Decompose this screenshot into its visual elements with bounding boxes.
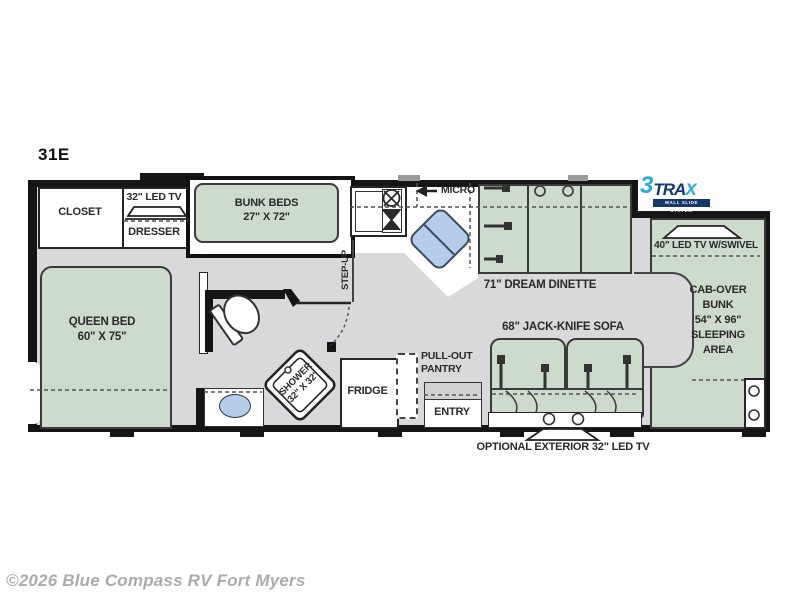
bathroom-wall — [205, 290, 213, 352]
jack-marker — [742, 432, 766, 437]
logo-tagline: WALL SLIDE SYSTEM — [653, 199, 710, 207]
slide-marker — [568, 175, 588, 181]
pantry-label: PANTRY — [421, 364, 481, 376]
3trax-logo: 3TRAX WALL SLIDE SYSTEM — [640, 174, 716, 206]
jack-marker — [610, 432, 634, 437]
door-hinge-stub — [327, 342, 336, 352]
cab-steps — [744, 378, 766, 429]
bunk-beds-size: 27" X 72" — [194, 211, 339, 223]
cab-top-wall — [629, 211, 770, 218]
sofa-cushion — [566, 338, 644, 394]
logo-x: X — [685, 181, 696, 198]
plan-title: 31E — [38, 146, 70, 165]
sink-wall-stub — [196, 388, 204, 425]
cabover-label: BUNK — [672, 299, 764, 311]
dinette-label: 71" DREAM DINETTE — [460, 279, 620, 292]
exterior-tv-label: OPTIONAL EXTERIOR 32" LED TV — [470, 441, 656, 453]
left-wall-notch — [28, 362, 40, 424]
fridge-label: FRIDGE — [341, 385, 394, 397]
sofa-label: 68" JACK-KNIFE SOFA — [480, 321, 646, 334]
jack-marker — [110, 432, 134, 437]
3trax-wordmark: 3TRAX — [640, 174, 716, 198]
logo-tra: TRA — [653, 181, 685, 198]
queen-bed — [40, 266, 172, 429]
sofa-cushion — [490, 338, 566, 394]
cabover-size: 54" X 96" — [672, 314, 764, 326]
bunk-beds-label: BUNK BEDS — [194, 197, 339, 209]
cabover-label: SLEEPING — [672, 329, 764, 341]
stepup-label: STEP-UP — [341, 245, 353, 295]
closet-label: CLOSET — [40, 206, 120, 218]
cabover-label: AREA — [672, 344, 764, 356]
micro-label: MICRO — [441, 185, 477, 197]
bench-divider — [580, 186, 582, 272]
sink-icon — [219, 394, 251, 418]
stove-cell — [382, 209, 402, 233]
bathroom-wall — [207, 290, 285, 299]
dealer-watermark: ©2026 Blue Compass RV Fort Myers — [6, 572, 306, 591]
queen-bed-size: 60" X 75" — [40, 331, 164, 344]
cushion-divider — [424, 224, 455, 255]
bench-divider — [527, 186, 529, 272]
tv32-label: 32" LED TV — [120, 192, 188, 204]
dream-dinette — [478, 184, 632, 274]
sink-cell — [382, 189, 402, 211]
cabover-label: CAB-OVER — [672, 284, 764, 296]
counter-top — [355, 191, 383, 232]
slide-marker — [398, 175, 420, 181]
jack-marker — [500, 432, 524, 437]
entry-label: ENTRY — [424, 406, 480, 418]
pull-out-pantry — [396, 353, 418, 419]
logo-3: 3 — [640, 174, 653, 198]
kitchen-counter — [350, 186, 407, 237]
sofa-base — [488, 412, 642, 428]
tv40-label: 40" LED TV W/SWIVEL — [650, 240, 762, 251]
pantry-label: PULL-OUT — [421, 351, 481, 363]
queen-bed-label: QUEEN BED — [40, 316, 164, 329]
jack-marker — [378, 432, 402, 437]
dresser-label: DRESSER — [120, 226, 188, 238]
floorplan-page: 31E CLOSET 32" LED TV DRESSER BUNK BEDS … — [0, 0, 800, 600]
jack-marker — [240, 432, 264, 437]
